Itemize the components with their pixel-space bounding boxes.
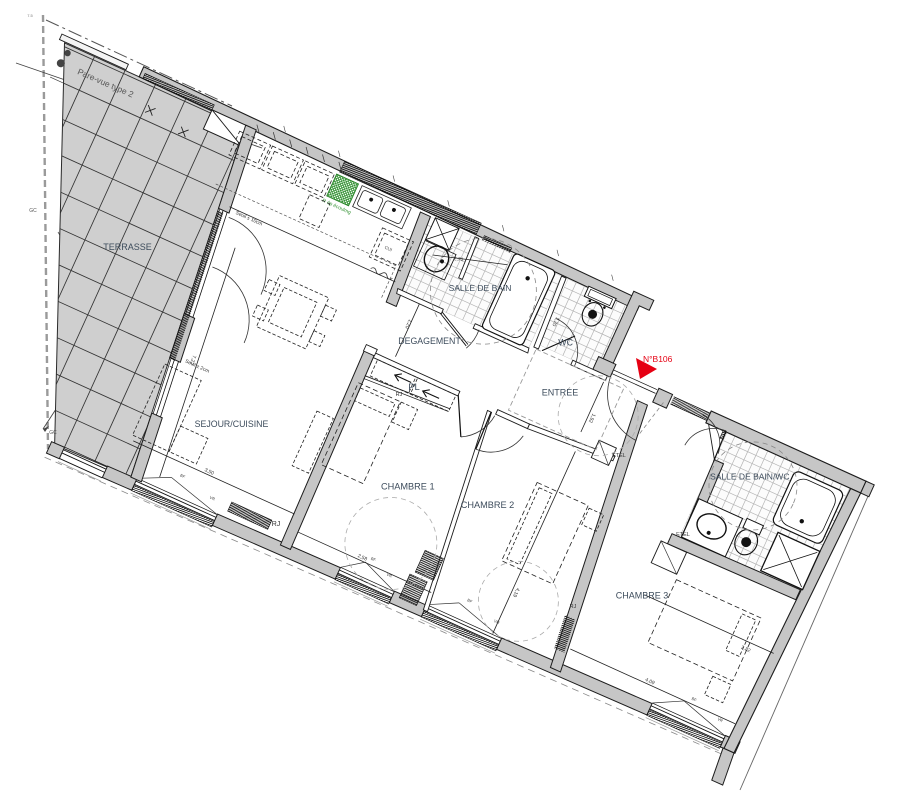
svg-text:SALLE DE BAIN: SALLE DE BAIN [449,283,512,293]
svg-text:CHAMBRE 3: CHAMBRE 3 [616,591,669,601]
svg-text:CHAMBRE 2: CHAMBRE 2 [461,500,515,510]
svg-text:SEJOUR/CUISINE: SEJOUR/CUISINE [195,419,269,429]
svg-text:N°B106: N°B106 [643,354,673,364]
svg-text:DEGAGEMENT: DEGAGEMENT [398,336,461,346]
svg-text:ETEL: ETEL [676,532,690,538]
svg-text:PL: PL [408,381,419,392]
svg-text:ENTREE: ENTREE [542,388,579,398]
svg-text:RJ: RJ [570,604,577,610]
svg-text:CHAMBRE 1: CHAMBRE 1 [381,482,435,492]
svg-text:ETEL: ETEL [612,453,626,459]
svg-text:GC: GC [29,208,37,214]
svg-text:7.5: 7.5 [27,13,33,18]
svg-text:SALLE DE BAIN/WC: SALLE DE BAIN/WC [710,472,789,482]
svg-text:2,71: 2,71 [453,256,464,263]
svg-text:WC: WC [558,338,573,348]
svg-text:GC: GC [49,430,57,436]
svg-text:RJ: RJ [396,392,403,398]
svg-text:RJ: RJ [272,521,281,528]
svg-text:TERRASSE: TERRASSE [103,242,152,252]
